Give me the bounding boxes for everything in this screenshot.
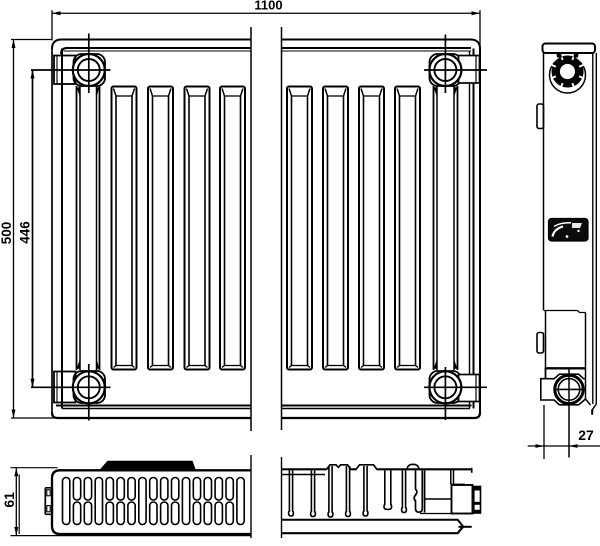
svg-text:500: 500 [0,222,14,245]
svg-text:1100: 1100 [254,0,282,13]
svg-text:446: 446 [18,221,33,244]
svg-text:27: 27 [578,427,594,443]
svg-text:61: 61 [1,492,17,508]
